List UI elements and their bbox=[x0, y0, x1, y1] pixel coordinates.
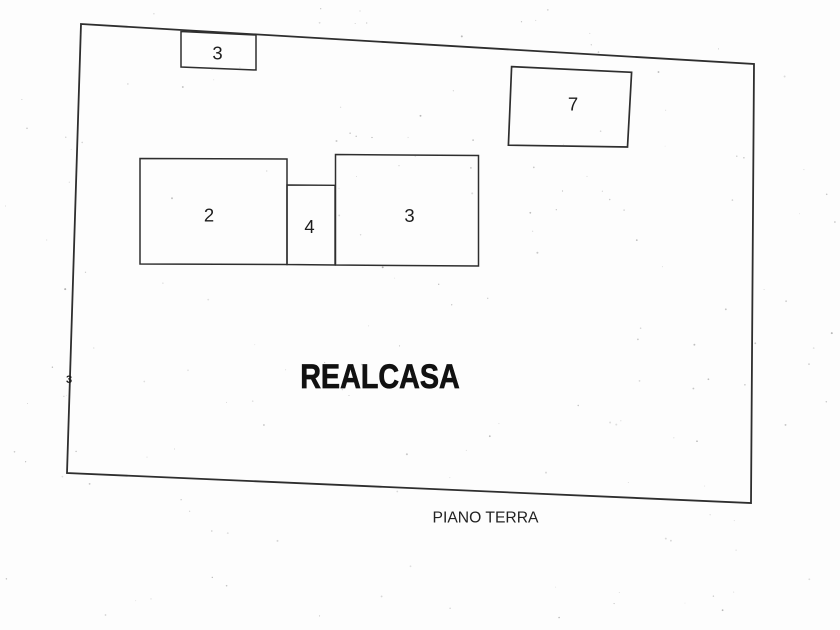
svg-text:3: 3 bbox=[66, 374, 72, 386]
svg-text:REALCASA: REALCASA bbox=[300, 358, 460, 396]
svg-text:7: 7 bbox=[568, 94, 578, 115]
svg-text:PIANO TERRA: PIANO TERRA bbox=[433, 509, 539, 526]
svg-text:2: 2 bbox=[204, 205, 214, 226]
svg-text:3: 3 bbox=[212, 43, 222, 64]
svg-text:3: 3 bbox=[404, 205, 414, 226]
svg-text:4: 4 bbox=[304, 216, 314, 237]
